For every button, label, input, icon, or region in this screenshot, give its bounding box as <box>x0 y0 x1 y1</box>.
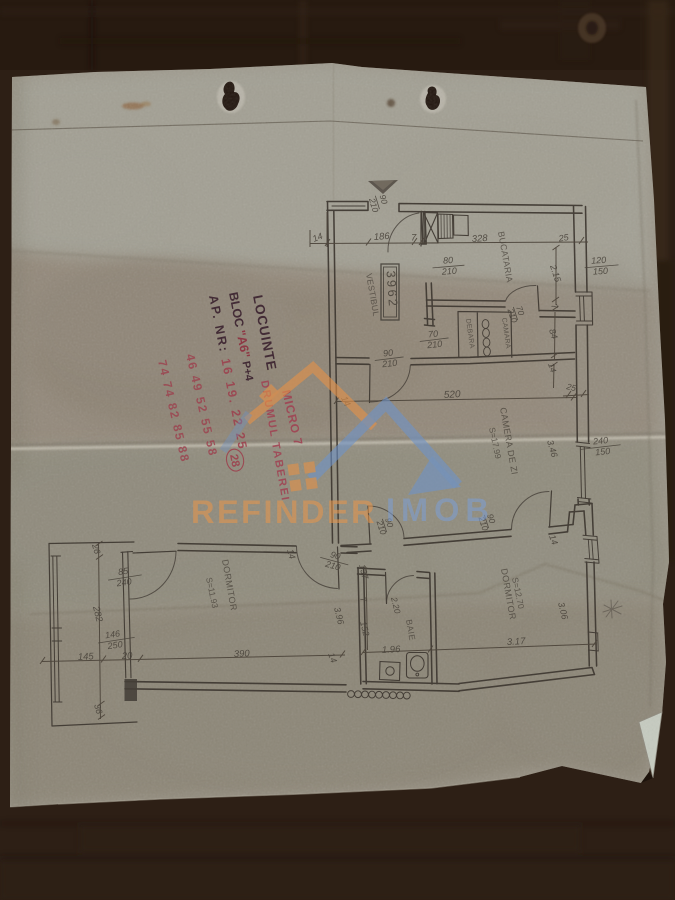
svg-text:390: 390 <box>234 648 251 660</box>
svg-text:145: 145 <box>78 651 95 663</box>
svg-text:REFINDER: REFINDER <box>191 494 377 530</box>
svg-text:328: 328 <box>471 233 488 245</box>
svg-text:IMOB: IMOB <box>386 492 495 528</box>
svg-text:7: 7 <box>411 233 417 244</box>
svg-text:3.17: 3.17 <box>507 636 527 648</box>
svg-text:70: 70 <box>428 329 439 340</box>
svg-text:80: 80 <box>443 255 454 266</box>
svg-text:520: 520 <box>444 389 462 401</box>
svg-text:150: 150 <box>593 266 609 277</box>
svg-text:20: 20 <box>121 650 134 662</box>
svg-text:186: 186 <box>373 231 390 243</box>
svg-text:120: 120 <box>591 255 607 266</box>
svg-text:1.96: 1.96 <box>382 644 402 656</box>
svg-text:90: 90 <box>383 348 394 359</box>
svg-text:240: 240 <box>592 435 609 447</box>
svg-text:146: 146 <box>104 628 120 640</box>
svg-text:3962: 3962 <box>384 270 401 309</box>
